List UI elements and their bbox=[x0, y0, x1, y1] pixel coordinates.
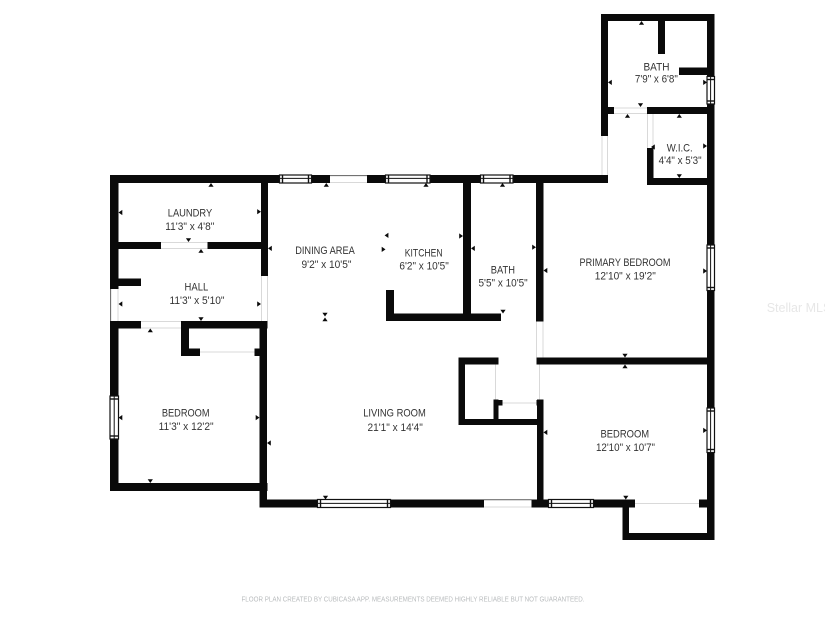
svg-text:6'2" x 10'5": 6'2" x 10'5" bbox=[399, 261, 449, 273]
svg-text:12'10" x 19'2": 12'10" x 19'2" bbox=[595, 271, 656, 283]
svg-text:11'3" x 5'10": 11'3" x 5'10" bbox=[170, 295, 225, 307]
svg-text:BATH: BATH bbox=[491, 265, 515, 277]
svg-text:9'2" x 10'5": 9'2" x 10'5" bbox=[302, 259, 352, 271]
svg-text:Stellar MLS: Stellar MLS bbox=[767, 301, 825, 315]
svg-text:LIVING ROOM: LIVING ROOM bbox=[363, 408, 426, 420]
svg-text:11'3" x 12'2": 11'3" x 12'2" bbox=[159, 421, 214, 433]
svg-text:BATH: BATH bbox=[644, 62, 670, 74]
svg-text:BEDROOM: BEDROOM bbox=[162, 408, 210, 420]
svg-text:5'5" x 10'5": 5'5" x 10'5" bbox=[479, 277, 528, 289]
svg-text:FLOOR PLAN CREATED BY CUBICASA: FLOOR PLAN CREATED BY CUBICASA APP. MEAS… bbox=[242, 595, 585, 604]
svg-text:BEDROOM: BEDROOM bbox=[601, 429, 650, 441]
svg-text:PRIMARY BEDROOM: PRIMARY BEDROOM bbox=[580, 257, 671, 269]
svg-text:LAUNDRY: LAUNDRY bbox=[168, 208, 213, 220]
svg-text:21'1" x 14'4": 21'1" x 14'4" bbox=[368, 422, 423, 434]
svg-text:12'10" x 10'7": 12'10" x 10'7" bbox=[596, 442, 655, 454]
svg-text:HALL: HALL bbox=[185, 282, 209, 294]
svg-text:11'3" x 4'8": 11'3" x 4'8" bbox=[165, 221, 214, 233]
svg-text:7'9" x 6'8": 7'9" x 6'8" bbox=[635, 74, 678, 86]
svg-text:W.I.C.: W.I.C. bbox=[667, 142, 693, 154]
svg-text:KITCHEN: KITCHEN bbox=[405, 248, 443, 260]
svg-text:4'4" x 5'3": 4'4" x 5'3" bbox=[659, 155, 702, 167]
svg-text:DINING AREA: DINING AREA bbox=[295, 245, 355, 257]
